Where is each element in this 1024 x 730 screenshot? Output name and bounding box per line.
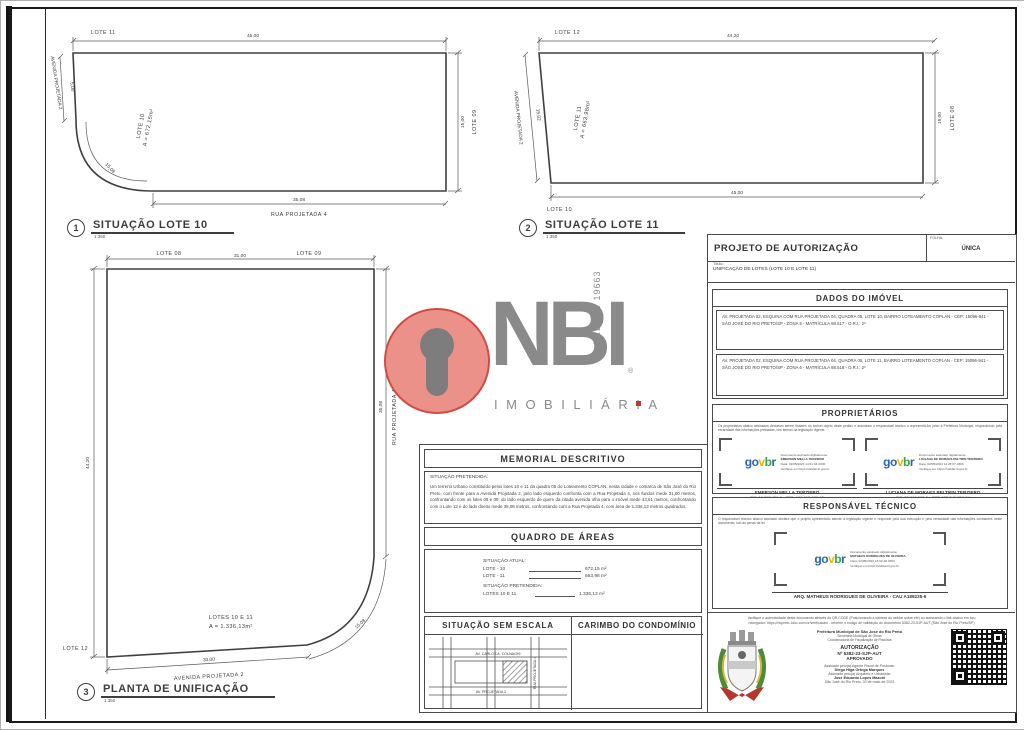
quadro-row-value: 663,98 m² — [585, 574, 607, 579]
keyhole-icon-stem — [426, 348, 448, 396]
tech-stamp-wrap: govbr Documento assinado digitalmente MA… — [772, 530, 948, 599]
dados-lote11-box: AV. PROJETADA 02, ESQUINA COM RUA PROJET… — [716, 354, 1004, 396]
drawing-planta-unificacao: LOTE 08 LOTE 09 31,00 44,20 35,08 RUA PR… — [59, 247, 429, 699]
stamp-corner — [865, 473, 878, 486]
folha-label: FOLHA: — [930, 236, 943, 240]
quadro-body-box: SITUAÇÃO ATUAL: LOTE - 10 672,15 m² LOTE… — [424, 549, 702, 613]
crest-shield — [728, 646, 756, 691]
qr-finder — [991, 631, 1005, 645]
title2-scale: 1:350 — [543, 234, 685, 239]
registered-mark: ® — [628, 368, 633, 375]
stamp-corner — [774, 532, 787, 545]
sem-escala-cell: SITUAÇÃO SEM ESCALA — [425, 617, 572, 710]
govbr-logo: govbr — [814, 552, 845, 566]
auth-stamp-status: APROVADO — [774, 656, 945, 661]
quadro-row-total: LOTES 10 E 11 1.336,13 m² — [483, 592, 701, 597]
quadro-row-label: LOTES 10 E 11 — [483, 592, 531, 597]
title1-number: 1 — [67, 219, 85, 237]
quadro-row-label: LOTE - 11 — [483, 574, 525, 579]
footer-row: Prefeitura Municipal de São José do Rio … — [708, 626, 1015, 705]
folha-cell: FOLHA: ÚNICA — [926, 235, 1015, 261]
title3-text: PLANTA DE UNIFICAÇÃO — [101, 683, 275, 698]
lot10-inner-labels: LOTE 10 A = 672,15m² — [134, 107, 155, 147]
drawing-situacao-lote10: LOTE 11 45,00 AVENIDA PROJETADA 2 5,00 1… — [43, 23, 483, 223]
nbi-logo-circle — [384, 308, 490, 414]
lot11-left-street: AVENIDA PROJETADA 2 — [512, 91, 524, 146]
verify-line2: navegador: https://riopreto.1doc.com.br/… — [708, 621, 1015, 626]
unif-bottom-street: AVENIDA PROJETADA 2 — [174, 672, 244, 682]
lot11-left-dim: 15,02 — [534, 109, 541, 122]
quadro-row-lote10: LOTE - 10 672,15 m² — [483, 567, 701, 572]
unif-top-label-left: LOTE 08 — [156, 251, 181, 257]
stamp-text-lines: Documento assinado digitalmente EMERSON … — [781, 453, 830, 472]
lot10-outline — [73, 53, 446, 191]
title1-text: SITUAÇÃO LOTE 10 — [91, 219, 234, 234]
unif-inner-label: LOTES 10 E 11 — [209, 615, 253, 621]
unif-inner-area: A = 1.336,13m² — [209, 624, 253, 630]
proprietarios-title: PROPRIETÁRIOS — [713, 405, 1007, 422]
prop-stamp-1-wrap: govbr Documento assinado digitalmente EM… — [717, 436, 857, 500]
map-bottom-street: AV. PROJETADA 2 — [476, 690, 506, 694]
responsavel-disclaimer: O responsável técnico abaixo assinado de… — [713, 515, 1007, 528]
memorial-panel: MEMORIAL DESCRITIVO SITUAÇÃO PRETENDIDA:… — [419, 444, 709, 713]
lot11-right-label: LOTE 08 — [950, 105, 956, 130]
prop1-name: EMERSON MELLA TERZIERO — [717, 488, 857, 495]
dados-lote10-box: AV. PROJETADA 02, ESQUINA COM RUA PROJET… — [716, 310, 1004, 350]
title-situacao-lote11: 2 SITUAÇÃO LOTE 11 1:350 — [519, 219, 685, 239]
qr-finder — [953, 669, 967, 683]
dados-lote10-text: AV. PROJETADA 02, ESQUINA COM RUA PROJET… — [717, 311, 1003, 330]
stamp-corner — [933, 532, 946, 545]
quadro-row-lote11: LOTE - 11 663,98 m² — [483, 574, 701, 579]
titulo-label: Título: — [713, 262, 1010, 266]
stamp-corner — [933, 573, 946, 586]
stamp-corner — [842, 438, 855, 451]
qr-finder — [953, 631, 967, 645]
leader-line — [535, 592, 575, 597]
lot10-bottom-street: RUA PROJETADA 4 — [271, 212, 327, 218]
unif-left-dim: 44,20 — [85, 457, 91, 469]
govbr-signature-stamp: govbr Documento assinado digitalmente MA… — [772, 530, 948, 588]
memorial-situation-label: SITUAÇÃO PRETENDIDA: — [430, 475, 696, 480]
title-situacao-lote10: 1 SITUAÇÃO LOTE 10 1:350 — [67, 219, 234, 239]
lot10-right-dim: 15,00 — [460, 116, 466, 128]
govbr-logo: govbr — [883, 455, 914, 469]
map-right-street: RUA PROJETADA 4 — [533, 657, 537, 690]
footer-center-text: Prefeitura Municipal de São José do Rio … — [774, 629, 945, 684]
stamp-corner — [719, 473, 732, 486]
lot10-top-dim: 45,00 — [247, 33, 259, 39]
stamp-corner — [774, 573, 787, 586]
memorial-text: Um terreno Urbano constituído pelos lote… — [430, 484, 696, 510]
lot11-bottom-label: LOTE 10 — [547, 207, 572, 213]
stamp-verify: Verifique em https://validar.iti.gov.br — [919, 467, 983, 472]
lot11-top-label: LOTE 12 — [555, 30, 580, 36]
svg-text:A = 663,98m²: A = 663,98m² — [580, 100, 593, 139]
autorizacao-footer: Verifique a autenticidade deste document… — [708, 612, 1015, 715]
titulo-value: UNIFICAÇÃO DE LOTES (LOTE 10 E LOTE 11) — [713, 267, 1010, 272]
lot11-bottom-dim: 45,00 — [731, 190, 743, 196]
unif-top-label-right: LOTE 09 — [296, 251, 321, 257]
lot10-top-label: LOTE 11 — [91, 30, 116, 36]
bottom-row-box: SITUAÇÃO SEM ESCALA — [424, 616, 702, 709]
proprietarios-disclaimer: Os proprietários abaixo assinados declar… — [713, 422, 1007, 435]
govbr-logo: govbr — [745, 455, 776, 469]
map-top-street: AV. CARLOS A. COLNAGHI — [476, 652, 521, 656]
crest-crown — [728, 630, 756, 645]
quadro-row-value: 1.336,13 m² — [579, 592, 605, 597]
stamp-text-lines: Documento assinado digitalmente LUCIANA … — [919, 453, 983, 472]
nbi-brand-text: NBI — [490, 288, 624, 380]
unif-top-dim: 31,00 — [234, 253, 246, 259]
stamp-corner — [988, 473, 1001, 486]
unif-bottom-dim: 30,00 — [203, 657, 216, 664]
unif-left-label: LOTE 12 — [63, 646, 88, 652]
prop2-name: LUCIANA DE MORAES PELTRIN TERZIERO — [863, 488, 1003, 495]
govbr-signature-stamp: govbr Documento assinado digitalmente EM… — [717, 436, 857, 488]
nbi-creci-text: CRECI J 19663 — [592, 270, 602, 346]
map-subject-lot — [503, 661, 527, 683]
lot11-top-dim: 44,20 — [727, 33, 739, 39]
title3-number: 3 — [77, 683, 95, 701]
title1-scale: 1:350 — [91, 234, 234, 239]
sem-escala-title: SITUAÇÃO SEM ESCALA — [425, 617, 571, 635]
title2-number: 2 — [519, 219, 537, 237]
city-date: São José do Rio Preto, 03 de maio de 202… — [774, 680, 945, 684]
panel-header-row: PROJETO DE AUTORIZAÇÃO FOLHA: ÚNICA — [708, 235, 1015, 262]
lot10-dimension-lines — [58, 37, 462, 208]
quadro-atual-label: SITUAÇÃO ATUAL: — [483, 559, 701, 564]
titulo-row: Título: UNIFICAÇÃO DE LOTES (LOTE 10 E L… — [708, 261, 1015, 283]
dados-lote11-text: AV. PROJETADA 02, ESQUINA COM RUA PROJET… — [717, 355, 1003, 374]
stamp-corner — [842, 473, 855, 486]
title-planta-unificacao: 3 PLANTA DE UNIFICAÇÃO 1:350 — [77, 683, 275, 703]
autorizacao-panel: PROJETO DE AUTORIZAÇÃO FOLHA: ÚNICA Títu… — [707, 234, 1017, 713]
title3-scale: 1:350 — [101, 698, 275, 703]
title2-text: SITUAÇÃO LOTE 11 — [543, 219, 685, 234]
proprietarios-stamps-row: govbr Documento assinado digitalmente EM… — [713, 435, 1007, 501]
memorial-body-box: SITUAÇÃO PRETENDIDA: Um terreno Urbano c… — [424, 471, 702, 524]
responsavel-box: RESPONSÁVEL TÉCNICO O responsável técnic… — [712, 497, 1008, 609]
leader-line — [529, 567, 581, 572]
stamp-corner — [988, 438, 1001, 451]
leader-line — [529, 574, 581, 579]
stamp-verify: Verifique em https://validar.iti.gov.br — [850, 564, 905, 569]
lot10-right-label: LOTE 09 — [472, 109, 478, 134]
stamp-text-lines: Documento assinado digitalmente MATHEUS … — [850, 550, 905, 569]
carimbo-cell: CARIMBO DO CONDOMÍNIO — [571, 617, 703, 710]
city-coat-of-arms — [716, 629, 768, 705]
quadro-row-value: 672,15 m² — [585, 567, 607, 572]
unif-dimension-lines — [90, 255, 390, 674]
lot11-inner-labels: LOTE 11 A = 663,98m² — [572, 99, 592, 139]
plan-sheet: LOTE 11 45,00 AVENIDA PROJETADA 2 5,00 1… — [0, 0, 1024, 730]
lot10-left-street: AVENIDA PROJETADA 2 — [49, 56, 63, 111]
stamp-verify: Verifique em https://validar.iti.gov.br — [781, 467, 830, 472]
stamp-corner — [719, 438, 732, 451]
carimbo-title: CARIMBO DO CONDOMÍNIO — [571, 617, 703, 635]
quadro-pretendida-label: SITUAÇÃO PRETENDIDA: — [483, 584, 701, 589]
stamp-corner — [865, 438, 878, 451]
dados-imovel-box: DADOS DO IMÓVEL AV. PROJETADA 02, ESQUIN… — [712, 289, 1008, 399]
dados-imovel-title: DADOS DO IMÓVEL — [713, 290, 1007, 307]
drawing-situacao-lote11: LOTE 12 44,20 AVENIDA PROJETADA 2 15,02 … — [503, 23, 963, 223]
responsavel-title: RESPONSÁVEL TÉCNICO — [713, 498, 1007, 515]
projeto-title: PROJETO DE AUTORIZAÇÃO — [708, 235, 926, 261]
stamp-date: Data: 02/05/2023 14:21:33-0300 — [781, 462, 830, 467]
folha-value: ÚNICA — [927, 246, 1015, 252]
quadro-row-label: LOTE - 10 — [483, 567, 525, 572]
lot10-bottom-dim: 35,08 — [293, 197, 305, 203]
proprietarios-box: PROPRIETÁRIOS Os proprietários abaixo as… — [712, 404, 1008, 494]
nbi-red-dot — [636, 401, 641, 406]
location-map: AV. CARLOS A. COLNAGHI AV. PROJETADA 2 R… — [425, 635, 571, 710]
responsavel-credential: ARQ. MATHEUS RODRIGUES DE OLIVEIRA - CAU… — [772, 592, 948, 599]
quadro-title: QUADRO DE ÁREAS — [424, 527, 702, 546]
prop-stamp-2-wrap: govbr Documento assinado digitalmente LU… — [863, 436, 1003, 500]
memorial-title: MEMORIAL DESCRITIVO — [424, 449, 702, 468]
org-line3: Coordenadoria de Fiscalização de Postura… — [774, 638, 945, 642]
lot11-right-dim: 15,00 — [937, 112, 943, 124]
qr-code — [951, 629, 1007, 685]
map-streets — [429, 637, 567, 708]
govbr-signature-stamp: govbr Documento assinado digitalmente LU… — [863, 436, 1003, 488]
nbi-watermark: NBI CRECI J 19663 ® IMOBILIÁRIA — [384, 302, 650, 422]
unif-outline — [107, 269, 374, 657]
lot11-outline — [539, 53, 923, 183]
